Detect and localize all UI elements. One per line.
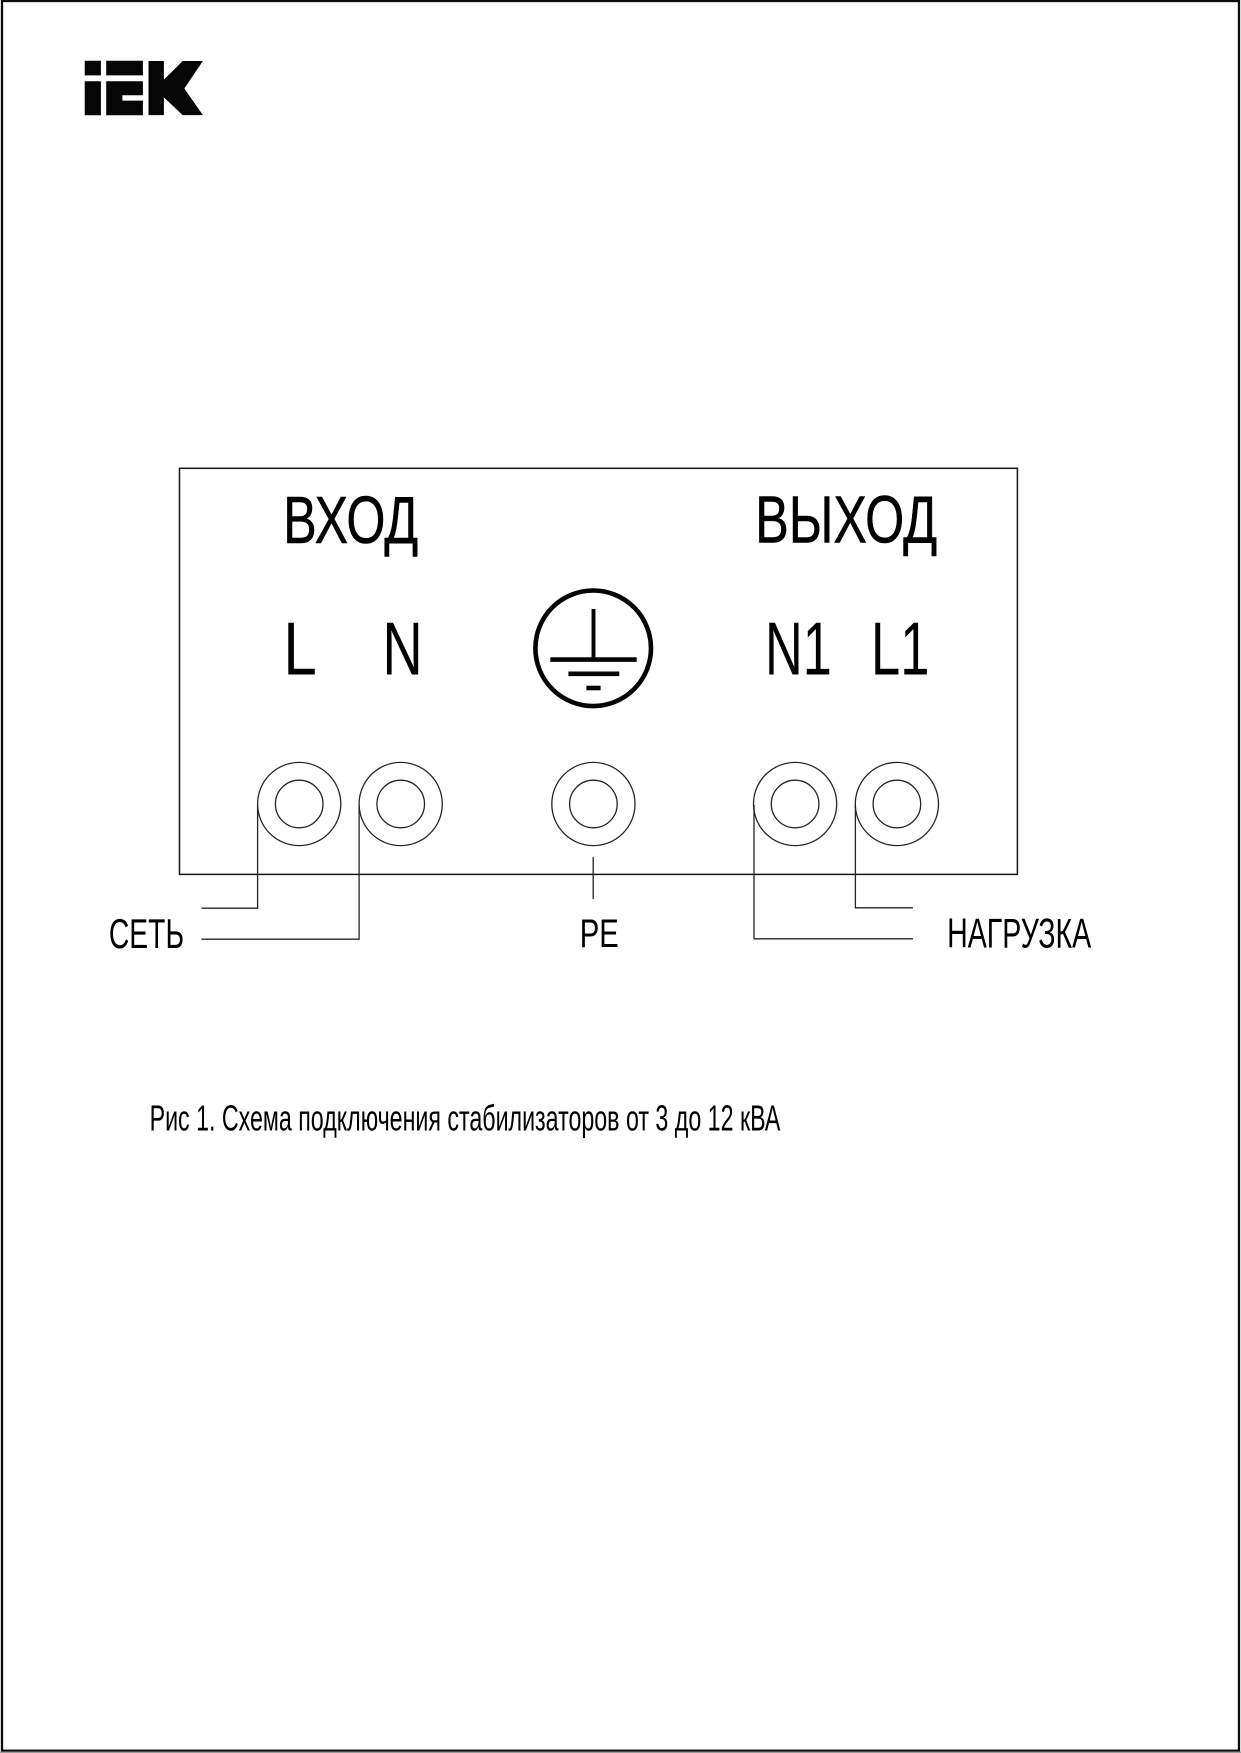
- svg-text:N: N: [382, 607, 422, 691]
- svg-text:L: L: [283, 607, 316, 691]
- svg-text:N1: N1: [765, 607, 832, 691]
- svg-text:L1: L1: [871, 607, 929, 691]
- svg-text:РЕ: РЕ: [580, 912, 619, 956]
- svg-text:СЕТЬ: СЕТЬ: [109, 910, 184, 957]
- svg-text:Рис 1. Схема подключения стаби: Рис 1. Схема подключения стабилизаторов …: [150, 1099, 781, 1139]
- svg-text:НАГРУЗКА: НАГРУЗКА: [947, 910, 1091, 957]
- svg-text:ВЫХОД: ВЫХОД: [755, 484, 937, 558]
- svg-text:ВХОД: ВХОД: [283, 484, 418, 558]
